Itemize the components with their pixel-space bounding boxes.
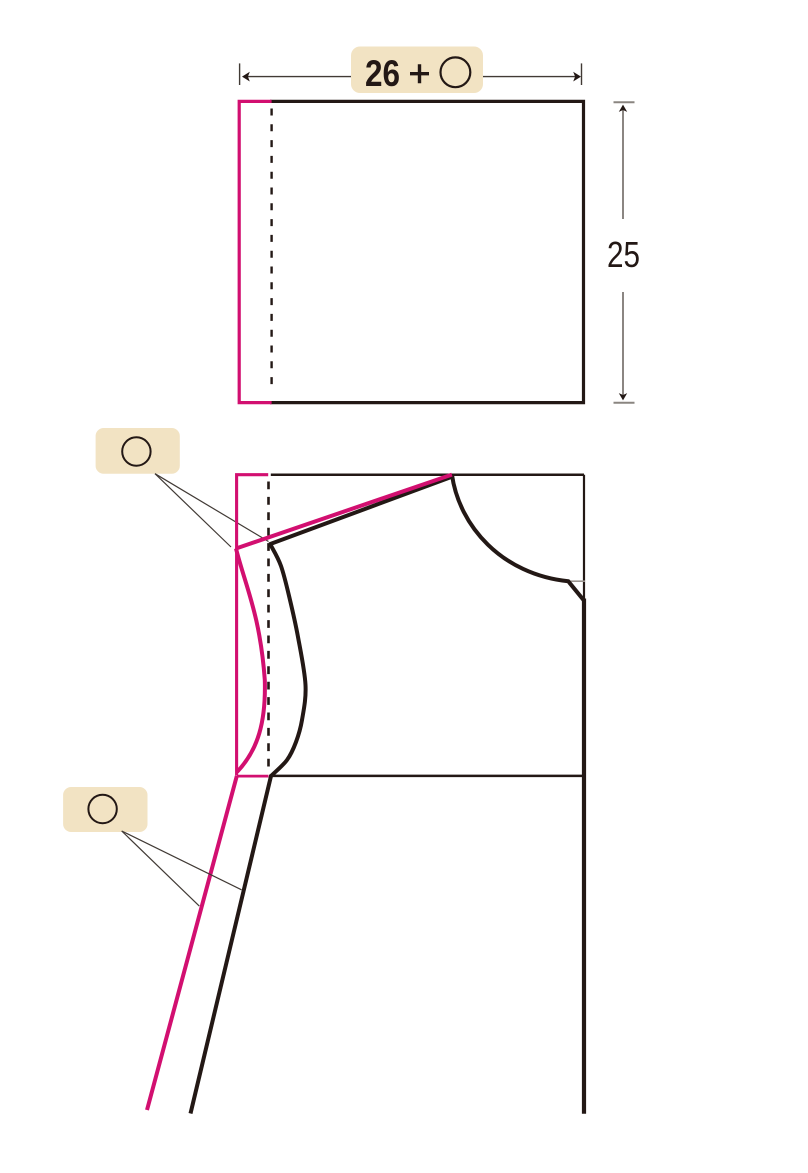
svg-text:26: 26: [365, 53, 400, 94]
svg-text:25: 25: [607, 234, 640, 275]
